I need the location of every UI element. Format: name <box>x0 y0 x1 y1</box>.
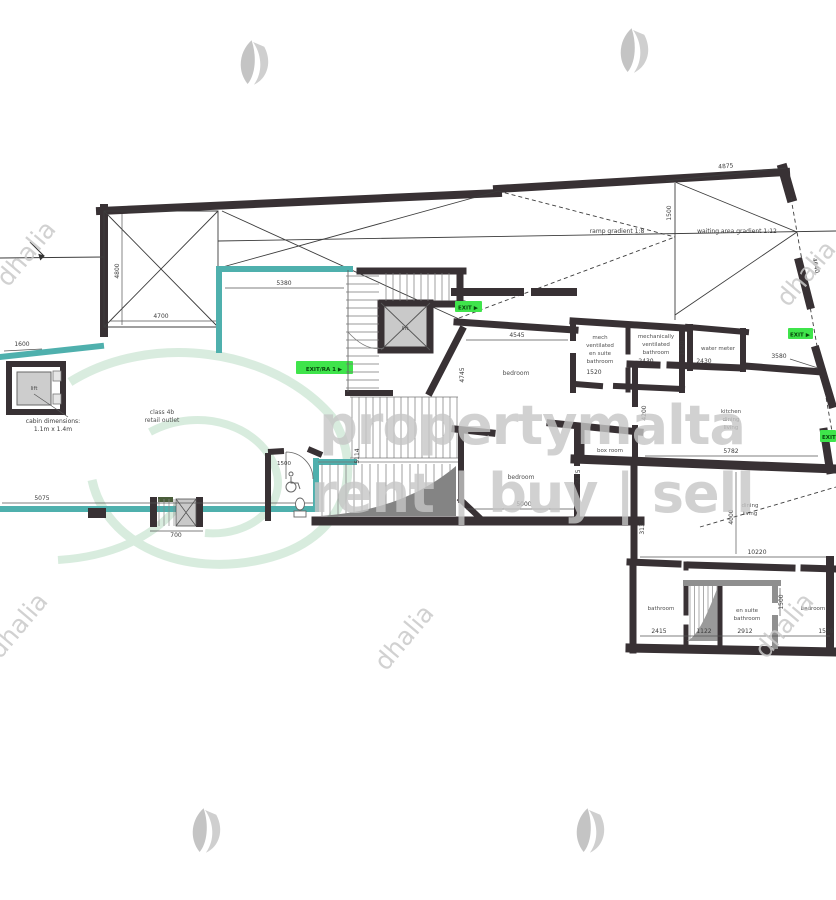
exit-retail-label: EXIT/RA 1 ▶ <box>296 361 353 374</box>
svg-text:EXIT ▶: EXIT ▶ <box>790 333 811 339</box>
dim-top-width: 4875 <box>718 162 734 170</box>
dim-ensuite-width: 1520 <box>586 369 601 376</box>
svg-text:bathroom: bathroom <box>643 350 670 356</box>
dim-bedroom-top-height: 4745 <box>459 367 466 382</box>
dim-wc-width: 1500 <box>277 461 291 467</box>
ramp-gradient-note: ramp gradient 1:8 <box>590 228 645 235</box>
watermark-brand: propertymalta <box>319 394 745 457</box>
label-class4b-2: retail outlet <box>145 417 180 424</box>
dim-cabin-width: 1600 <box>14 341 29 348</box>
apartment-top: EXIT ▶ EXIT ▶ bedroom 4545 4745 mech ven… <box>455 262 832 404</box>
floor-plan-page: ramp gradient 1:8 waiting area gradient … <box>0 0 836 900</box>
dim-bottom-width: 10220 <box>747 549 766 556</box>
dim-bedroom-br-width: 1580 <box>818 628 833 635</box>
svg-text:mechanically: mechanically <box>638 334 675 340</box>
dim-right-wall: 3580 <box>771 353 786 360</box>
waiting-gradient-note: waiting area gradient 1:12 <box>697 228 777 235</box>
exit-corner-label: EXIT ▶ <box>820 430 836 442</box>
dim-ensuite-br-width: 2912 <box>737 628 752 635</box>
dim-shaft-br-width: 1122 <box>696 628 711 635</box>
watermark-dhalia-bottom-left: dhalia <box>0 587 54 664</box>
label-cabin-dim-2: 1.1m x 1.4m <box>34 426 72 433</box>
svg-text:EXIT/RA 1 ▶: EXIT/RA 1 ▶ <box>306 367 343 373</box>
label-cabin-lift: lift <box>30 386 38 392</box>
svg-text:en suite: en suite <box>589 351 612 357</box>
svg-text:EXIT ▶: EXIT ▶ <box>822 435 836 441</box>
label-class4b-1: class 4b <box>150 409 175 416</box>
label-ensuite-br: en suite bathroom <box>734 608 761 622</box>
watermark-tagline: rent | buy | sell <box>310 462 753 525</box>
watermark-dhalia-bottom-mid: dhalia <box>368 599 439 676</box>
green-leaf-watermark <box>58 353 348 565</box>
label-bathroom-br: bathroom <box>648 606 675 612</box>
svg-text:en suite: en suite <box>736 608 759 614</box>
dim-shaft-width: 700 <box>170 532 182 539</box>
column <box>88 508 106 518</box>
dim-bath-height: 1520 <box>679 340 686 355</box>
exit-right-label: EXIT ▶ <box>788 328 813 339</box>
wheelchair-icon <box>286 472 300 492</box>
dim-bedroom-top-width: 4545 <box>509 332 524 339</box>
label-lift: lift <box>401 326 409 332</box>
floor-plan-drawing: ramp gradient 1:8 waiting area gradient … <box>0 0 836 900</box>
dhalia-leaf-icon <box>236 38 273 87</box>
watermarks: propertymalta rent | buy | sell dhalia d… <box>0 26 836 855</box>
label-mech-bathroom: mechanically ventilated bathroom <box>638 334 675 356</box>
svg-text:ventilated: ventilated <box>586 343 614 349</box>
svg-text:mech: mech <box>592 335 608 341</box>
dim-retail-top: 5380 <box>276 280 291 287</box>
label-bedroom-top: bedroom <box>503 370 530 377</box>
dim-strip-height: 1500 <box>666 205 673 220</box>
svg-text:EXIT ▶: EXIT ▶ <box>458 306 479 312</box>
svg-text:bathroom: bathroom <box>587 359 614 365</box>
dim-retail-bottom: 5075 <box>34 495 49 502</box>
dhalia-leaf-icon <box>616 26 653 75</box>
watermark-dhalia-left: dhalia <box>0 215 62 292</box>
dhalia-leaf-icon <box>572 806 609 855</box>
dim-bath-br-width: 2415 <box>651 628 666 635</box>
dim-ramp-width: 4700 <box>153 313 168 320</box>
label-water-meter: water meter <box>701 346 736 352</box>
svg-text:ventilated: ventilated <box>642 342 670 348</box>
dhalia-leaf-icon <box>188 806 225 855</box>
label-mech-ensuite: mech ventilated en suite bathroom <box>586 335 614 365</box>
watermark-dhalia-right: dhalia <box>770 235 836 312</box>
label-cabin-dim-1: cabin dimensions: <box>26 418 80 425</box>
svg-text:bathroom: bathroom <box>734 616 761 622</box>
dim-ramp-height: 4800 <box>114 263 121 278</box>
exit-top-label: EXIT ▶ <box>455 301 482 312</box>
